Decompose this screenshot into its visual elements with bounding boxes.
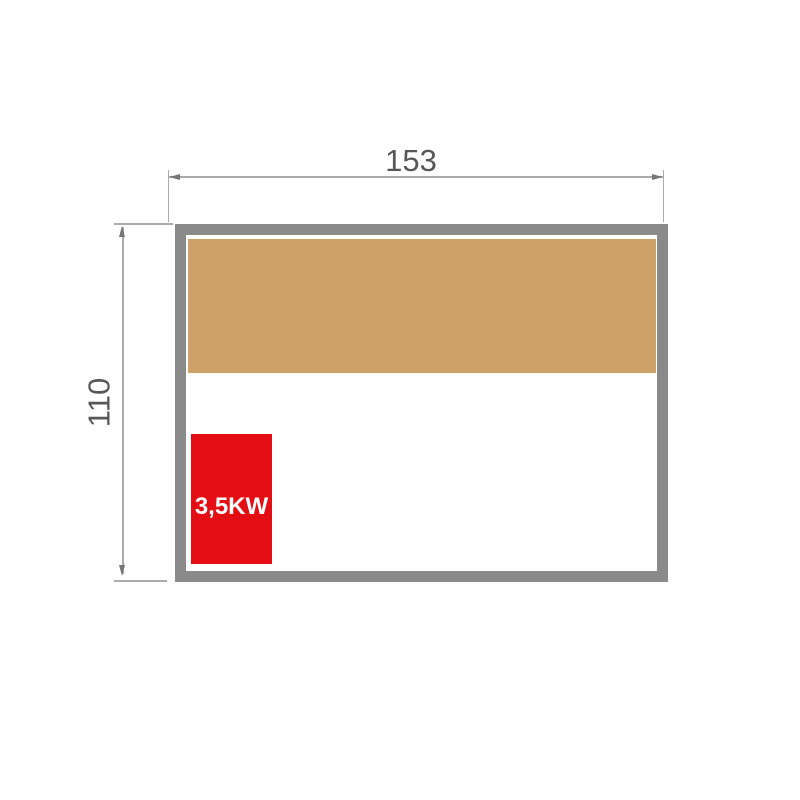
diagram-canvas: 153 110 3,5KW	[0, 0, 800, 800]
width-extension-line-right	[663, 170, 665, 222]
width-arrow-left-icon	[169, 174, 180, 180]
height-extension-line-bottom	[114, 580, 167, 582]
width-arrow-right-icon	[652, 174, 663, 180]
height-arrow-down-icon	[119, 565, 125, 576]
heater-power-label: 3,5KW	[195, 493, 268, 521]
height-dimension-label: 110	[84, 343, 115, 463]
width-dimension-label: 153	[346, 145, 476, 176]
heater-block: 3,5KW	[191, 434, 272, 564]
width-extension-line-left	[168, 170, 170, 222]
height-arrow-up-icon	[119, 226, 125, 237]
bench-area	[188, 239, 656, 373]
width-dimension-line	[169, 176, 663, 178]
height-dimension-line	[122, 227, 124, 574]
height-extension-line-top	[114, 223, 173, 225]
